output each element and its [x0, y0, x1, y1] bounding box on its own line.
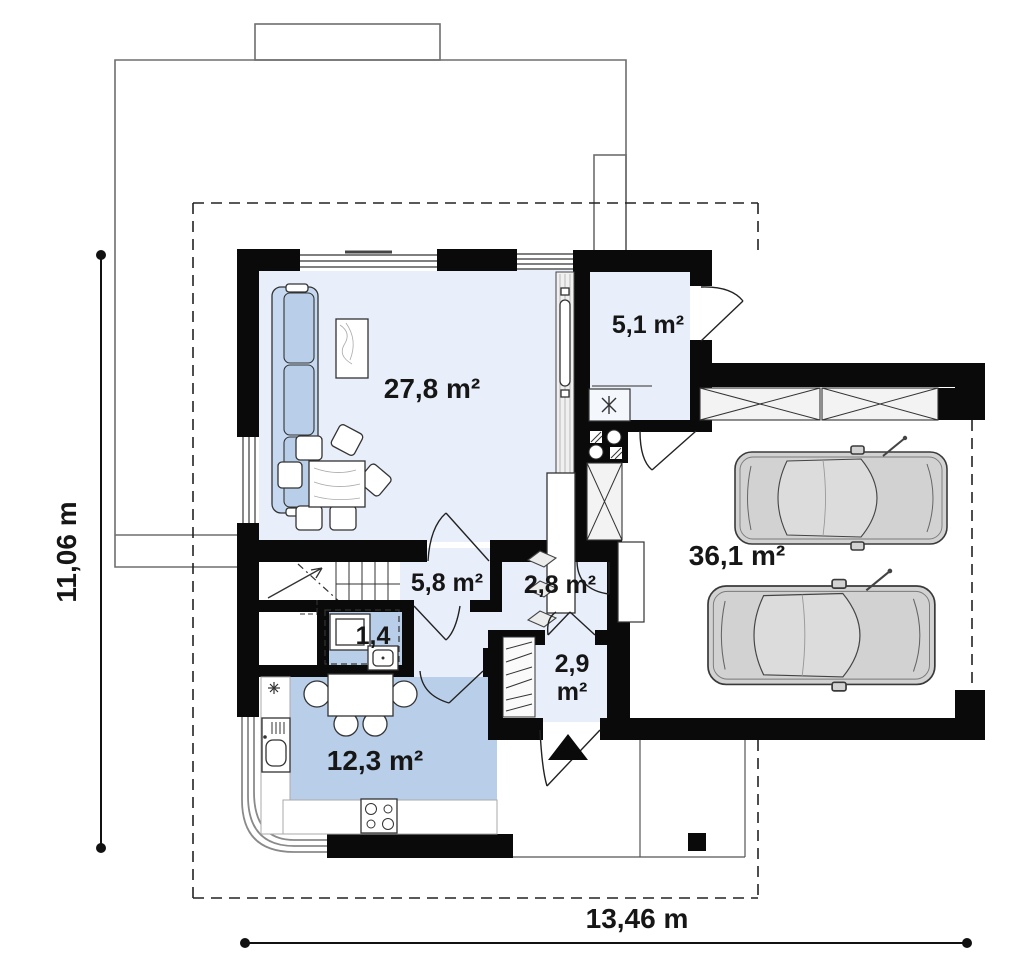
floor-plan-canvas: 27,8 m² 5,1 m² 5,8 m² 2,8 m² 1,4 2,9 m² … — [0, 0, 1024, 980]
kitchen-sink — [262, 718, 290, 772]
label-dim-height: 11,06 m — [51, 501, 82, 602]
kitchenette-column — [585, 428, 628, 540]
label-living: 27,8 m² — [384, 373, 481, 404]
room-closet-floor — [259, 607, 317, 665]
label-vestibule: 2,9 — [555, 650, 590, 678]
label-kitchen: 12,3 m² — [327, 745, 424, 776]
label-wc: 1,4 — [356, 622, 391, 650]
label-dim-width: 13,46 m — [586, 903, 689, 934]
garage-bottom-wall — [630, 718, 985, 740]
floor-plan: 27,8 m² 5,1 m² 5,8 m² 2,8 m² 1,4 2,9 m² … — [0, 0, 1024, 980]
label-corridor: 2,8 m² — [524, 571, 596, 599]
wardrobe — [503, 637, 535, 717]
garage-top-wall — [697, 363, 985, 387]
kitchen-chair — [304, 681, 330, 707]
label-garage: 36,1 m² — [689, 540, 786, 571]
dining-chair — [296, 506, 322, 530]
dining-chair — [330, 506, 356, 530]
car-1 — [735, 436, 947, 550]
garage-door-slab — [618, 542, 644, 622]
living-window-left — [237, 437, 259, 523]
living-window-top — [300, 249, 437, 271]
living-window-top-right — [517, 250, 573, 270]
label-pantry: 5,1 m² — [612, 311, 684, 339]
coffee-table — [336, 319, 368, 378]
porch-pillar — [688, 833, 706, 851]
car-2 — [708, 569, 935, 691]
stove — [361, 799, 397, 833]
label-hall: 5,8 m² — [411, 569, 483, 597]
label-vestibule-unit: m² — [557, 678, 588, 706]
garage-storage-x-panels — [700, 388, 938, 420]
dining-chair — [296, 436, 322, 460]
dining-chair — [278, 462, 302, 488]
kitchen-chair — [391, 681, 417, 707]
